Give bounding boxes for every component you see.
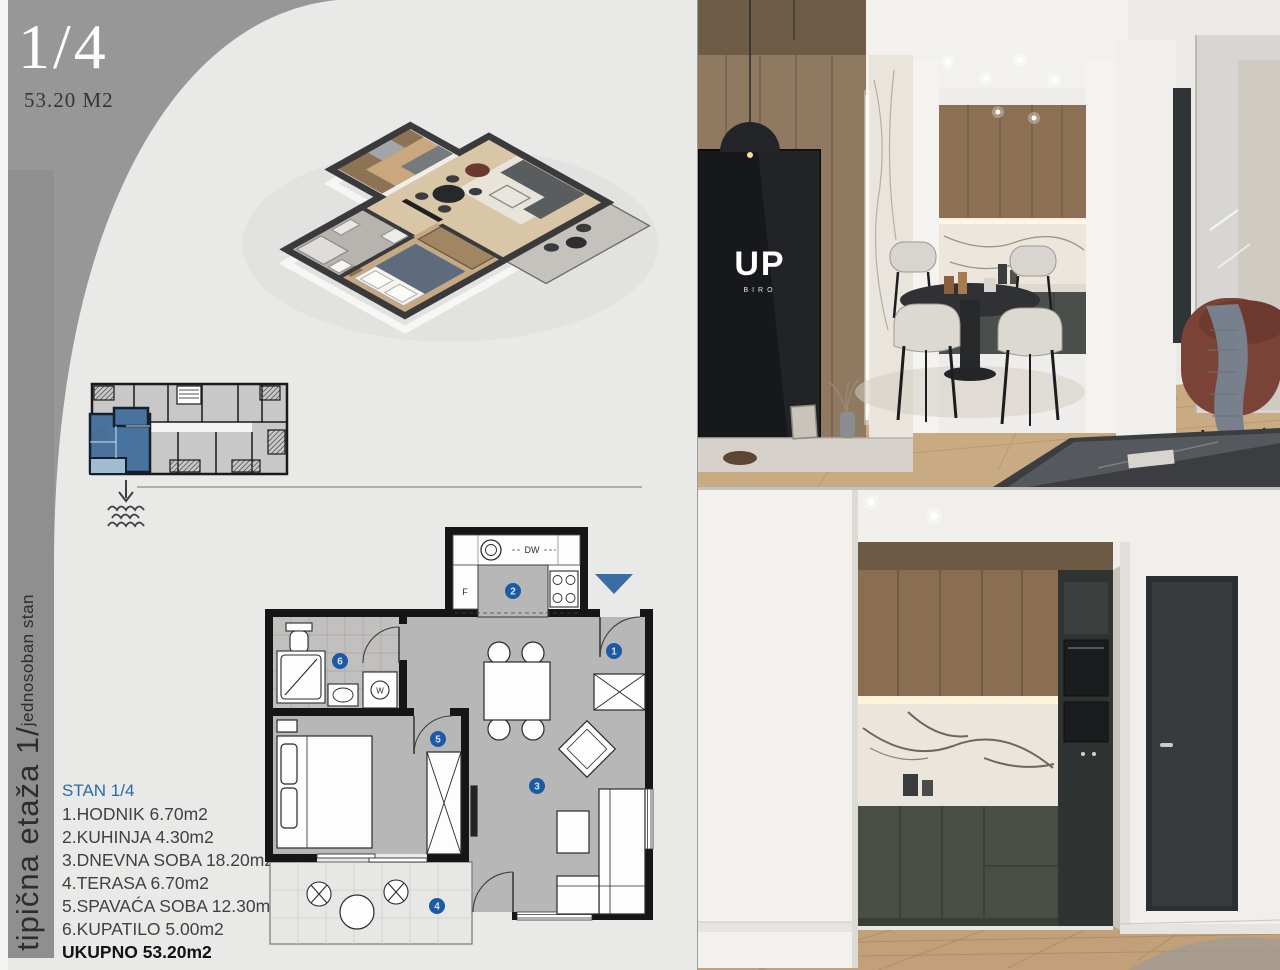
tv-logo-sub: BIRO	[743, 287, 776, 294]
badge-kitchen: 2	[510, 587, 516, 598]
photo-column: UP BIRO	[697, 0, 1280, 970]
room-list: STAN 1/4 1.HODNIK 6.70m2 2.KUHINJA 4.30m…	[62, 779, 280, 964]
badge-bedroom: 5	[435, 735, 441, 746]
room-list-item: 6.KUPATILO 5.00m2	[62, 918, 280, 941]
key-plan-highlighted-unit	[90, 408, 150, 474]
interior-photo-dining: UP BIRO	[698, 0, 1280, 487]
room-list-total: UKUPNO 53.20m2	[62, 941, 280, 964]
unit-area: 53.20 M2	[24, 88, 114, 113]
room-list-item: 2.KUHINJA 4.30m2	[62, 826, 280, 849]
dishwasher-label: DW	[525, 545, 540, 555]
kitchen-nook	[858, 542, 1120, 930]
tv-logo: UP	[734, 245, 785, 283]
key-plan	[82, 378, 307, 486]
badge-terrace: 4	[434, 902, 440, 913]
floor-plan-3d	[222, 12, 667, 417]
room-list-item: 1.HODNIK 6.70m2	[62, 803, 280, 826]
badge-living: 3	[534, 782, 540, 793]
dark-door	[1146, 576, 1238, 911]
tv-panel: UP BIRO	[698, 150, 820, 440]
badge-hall: 1	[611, 647, 617, 658]
badge-bathroom: 6	[337, 657, 343, 668]
washer-label: W	[376, 687, 384, 696]
floor-plan-2d: DW F W	[262, 524, 660, 952]
hall-closet	[594, 674, 645, 710]
room-list-item: 4.TERASA 6.70m2	[62, 872, 280, 895]
kitchen-fixtures: DW F	[453, 535, 580, 617]
side-vertical-label: tipična etaža 1/jednosoban stan	[3, 594, 53, 956]
entrance-arrow	[595, 574, 633, 594]
room-list-title: STAN 1/4	[62, 779, 280, 802]
unit-number: 1/4	[18, 10, 109, 84]
room-list-item: 5.SPAVAĆA SOBA 12.30m2	[62, 895, 280, 918]
room-list-item: 3.DNEVNA SOBA 18.20m2	[62, 849, 280, 872]
apartment-type-label: jednosoban stan	[18, 594, 37, 726]
ground-line	[137, 486, 642, 488]
floor-type-label: tipična etaža 1/	[10, 726, 45, 951]
interior-photo-kitchen	[698, 490, 1280, 970]
fridge-label: F	[462, 587, 468, 597]
brochure-page: 1/4 53.20 M2 tipična etaža 1/jednosoban …	[0, 0, 1280, 970]
